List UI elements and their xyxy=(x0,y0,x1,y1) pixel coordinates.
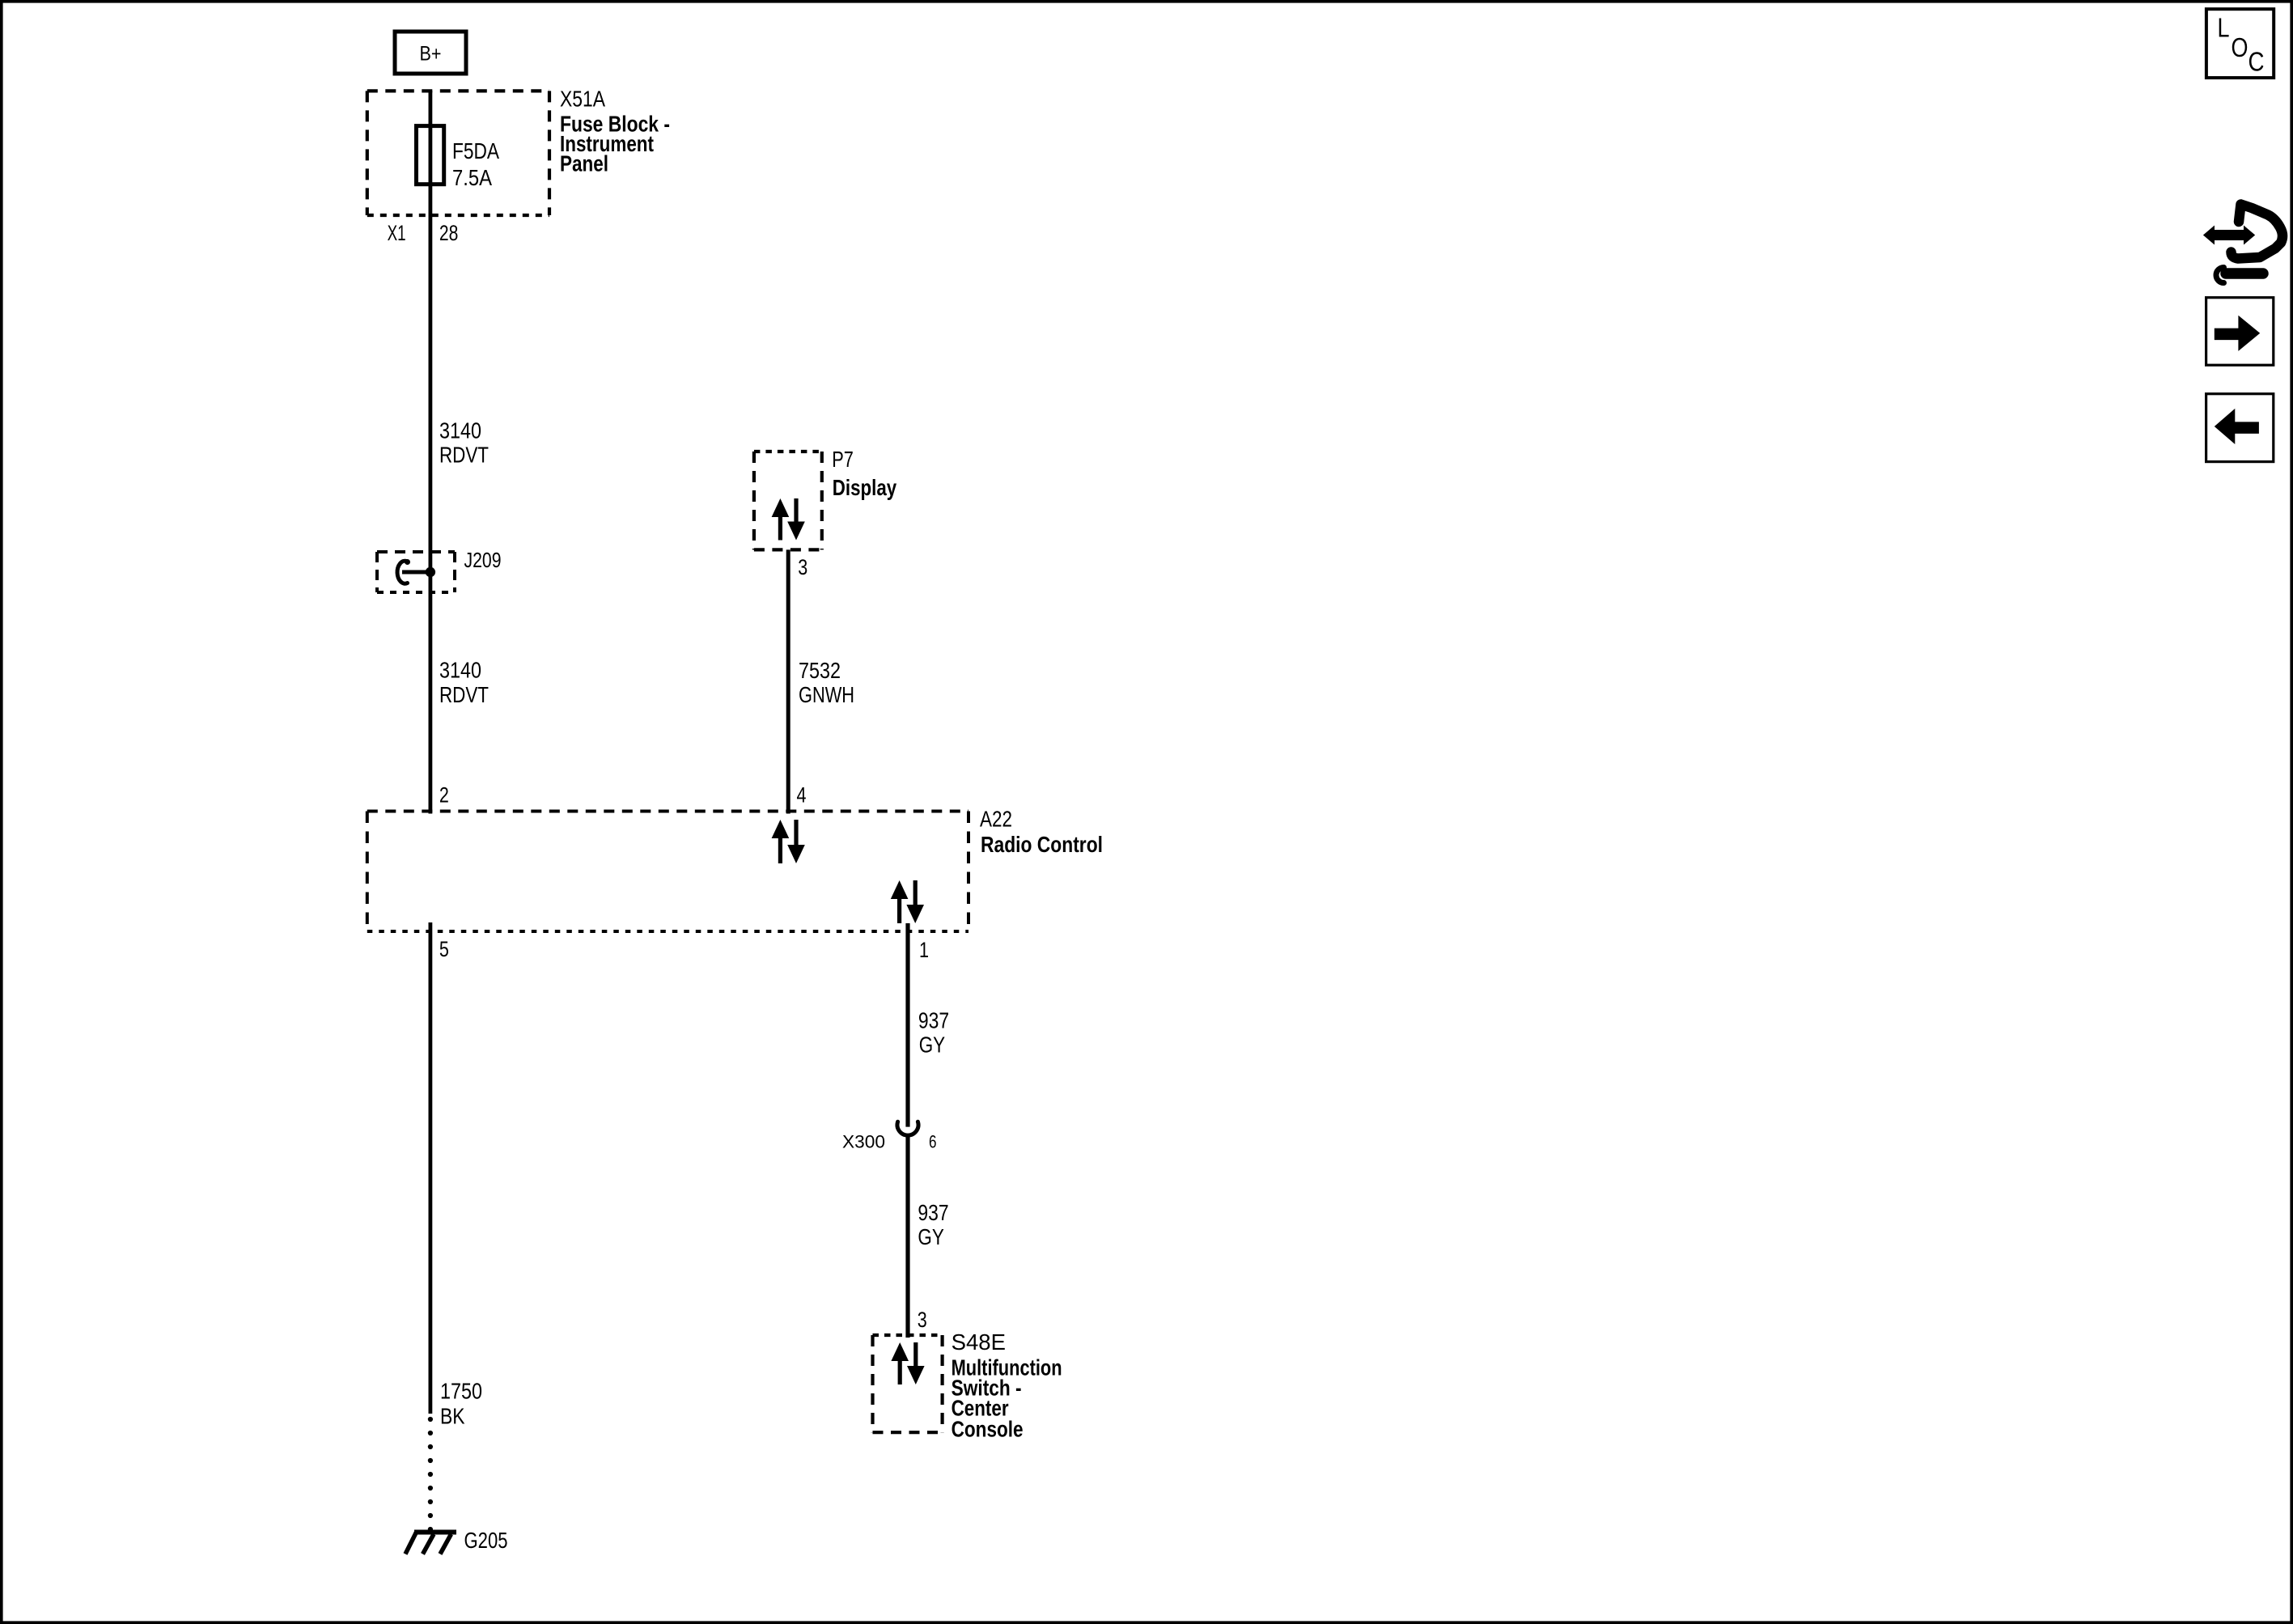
svg-text:P7: P7 xyxy=(832,447,854,472)
svg-text:L: L xyxy=(2218,13,2230,43)
svg-text:7.5A: 7.5A xyxy=(452,165,492,190)
svg-text:3: 3 xyxy=(918,1308,927,1332)
svg-text:3140: 3140 xyxy=(439,657,481,682)
svg-text:B+: B+ xyxy=(420,43,442,66)
svg-text:28: 28 xyxy=(439,221,459,245)
svg-text:3140: 3140 xyxy=(439,418,481,443)
svg-text:S48E: S48E xyxy=(952,1329,1006,1355)
svg-text:7532: 7532 xyxy=(799,658,841,683)
svg-text:5: 5 xyxy=(439,937,449,961)
svg-text:4: 4 xyxy=(797,783,807,808)
svg-text:GNWH: GNWH xyxy=(799,682,854,707)
svg-text:RDVT: RDVT xyxy=(439,442,489,467)
svg-text:RDVT: RDVT xyxy=(439,682,489,707)
svg-text:Console: Console xyxy=(952,1417,1024,1442)
svg-text:O: O xyxy=(2232,32,2248,62)
svg-text:BK: BK xyxy=(440,1403,465,1428)
svg-text:Radio Control: Radio Control xyxy=(981,832,1103,857)
svg-text:F5DA: F5DA xyxy=(452,138,499,163)
svg-text:3: 3 xyxy=(798,555,807,579)
svg-text:Display: Display xyxy=(833,475,897,500)
svg-text:G205: G205 xyxy=(464,1528,508,1553)
svg-text:1: 1 xyxy=(919,938,929,962)
svg-text:2: 2 xyxy=(439,783,449,808)
svg-text:X1: X1 xyxy=(388,221,406,245)
svg-text:C: C xyxy=(2248,46,2265,76)
svg-text:6: 6 xyxy=(929,1131,937,1151)
svg-text:J209: J209 xyxy=(464,548,502,572)
svg-text:X300: X300 xyxy=(842,1131,885,1151)
svg-text:937: 937 xyxy=(918,1200,948,1225)
svg-text:A22: A22 xyxy=(980,807,1012,832)
svg-text:X51A: X51A xyxy=(560,87,605,112)
svg-text:GY: GY xyxy=(918,1224,944,1249)
svg-text:GY: GY xyxy=(919,1032,946,1058)
svg-text:Panel: Panel xyxy=(560,151,608,176)
svg-text:937: 937 xyxy=(918,1008,949,1033)
svg-text:1750: 1750 xyxy=(440,1378,482,1403)
